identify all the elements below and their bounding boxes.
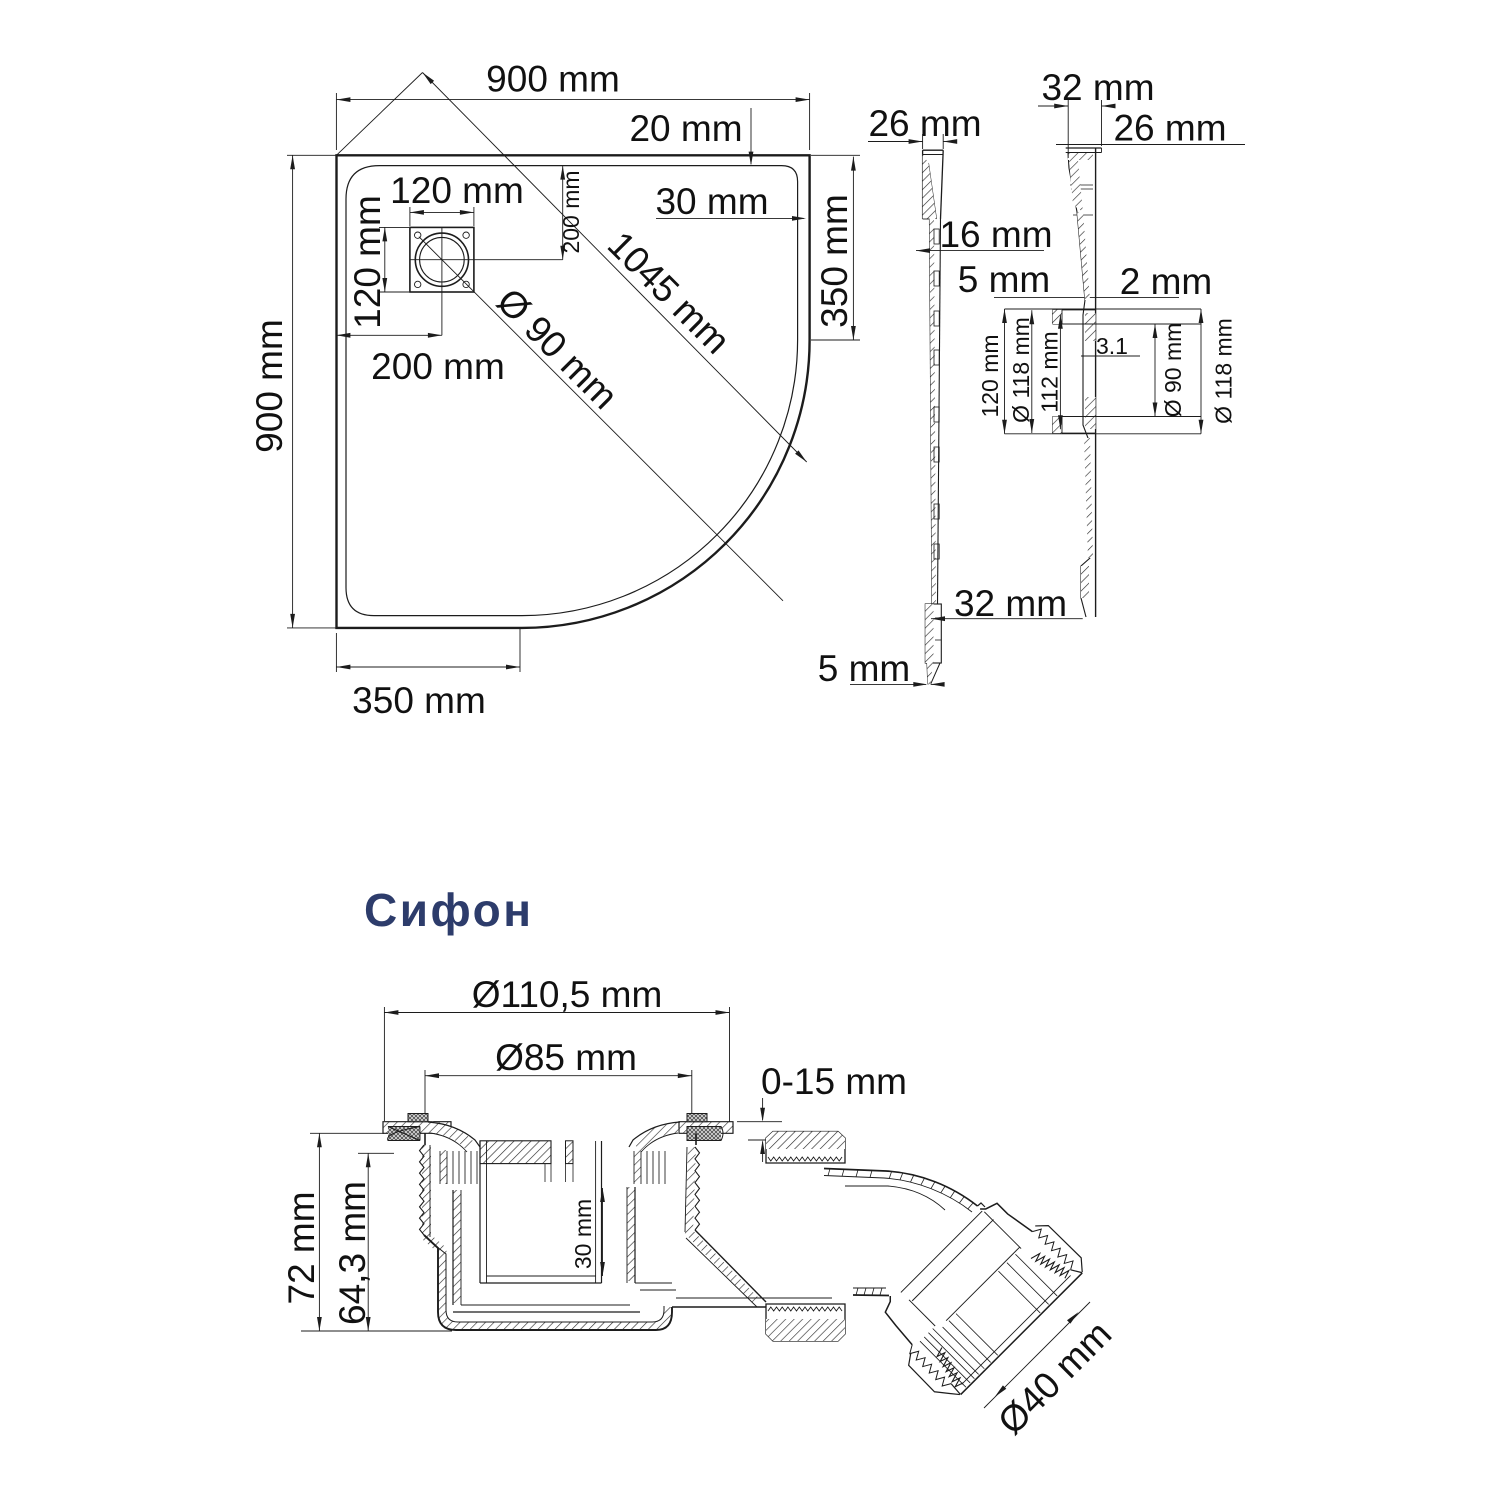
svg-text:112 mm: 112 mm [1037,331,1063,412]
svg-text:Ø 118 mm: Ø 118 mm [1008,317,1034,423]
svg-text:30 mm: 30 mm [655,181,768,222]
svg-text:900 mm: 900 mm [486,59,620,100]
svg-text:20 mm: 20 mm [629,108,742,149]
svg-text:5 mm: 5 mm [818,648,911,689]
svg-text:Ø 118 mm: Ø 118 mm [1211,318,1237,424]
svg-text:2 mm: 2 mm [1120,261,1213,302]
svg-text:Ø110,5 mm: Ø110,5 mm [472,974,663,1015]
svg-text:16 mm: 16 mm [939,214,1052,255]
svg-text:Сифон: Сифон [364,884,534,936]
svg-text:26 mm: 26 mm [868,103,981,144]
svg-text:3.1: 3.1 [1096,333,1128,359]
svg-text:Ø85 mm: Ø85 mm [495,1037,637,1078]
svg-text:32 mm: 32 mm [954,583,1067,624]
svg-text:64,3 mm: 64,3 mm [332,1181,373,1325]
svg-text:120 mm: 120 mm [390,170,524,211]
svg-text:200 mm: 200 mm [371,346,505,387]
svg-text:72 mm: 72 mm [281,1191,322,1304]
svg-text:32 mm: 32 mm [1041,67,1154,108]
svg-text:Ø 90 mm: Ø 90 mm [1160,323,1186,418]
svg-text:350 mm: 350 mm [352,680,486,721]
svg-text:26 mm: 26 mm [1113,108,1226,149]
svg-text:0-15 mm: 0-15 mm [761,1061,907,1102]
svg-text:5 mm: 5 mm [958,259,1051,300]
svg-text:120 mm: 120 mm [977,334,1003,417]
svg-text:900 mm: 900 mm [249,319,290,453]
svg-text:350 mm: 350 mm [814,194,855,328]
svg-text:120 mm: 120 mm [347,195,388,329]
svg-text:30 mm: 30 mm [570,1199,596,1269]
svg-text:200 mm: 200 mm [558,170,584,253]
